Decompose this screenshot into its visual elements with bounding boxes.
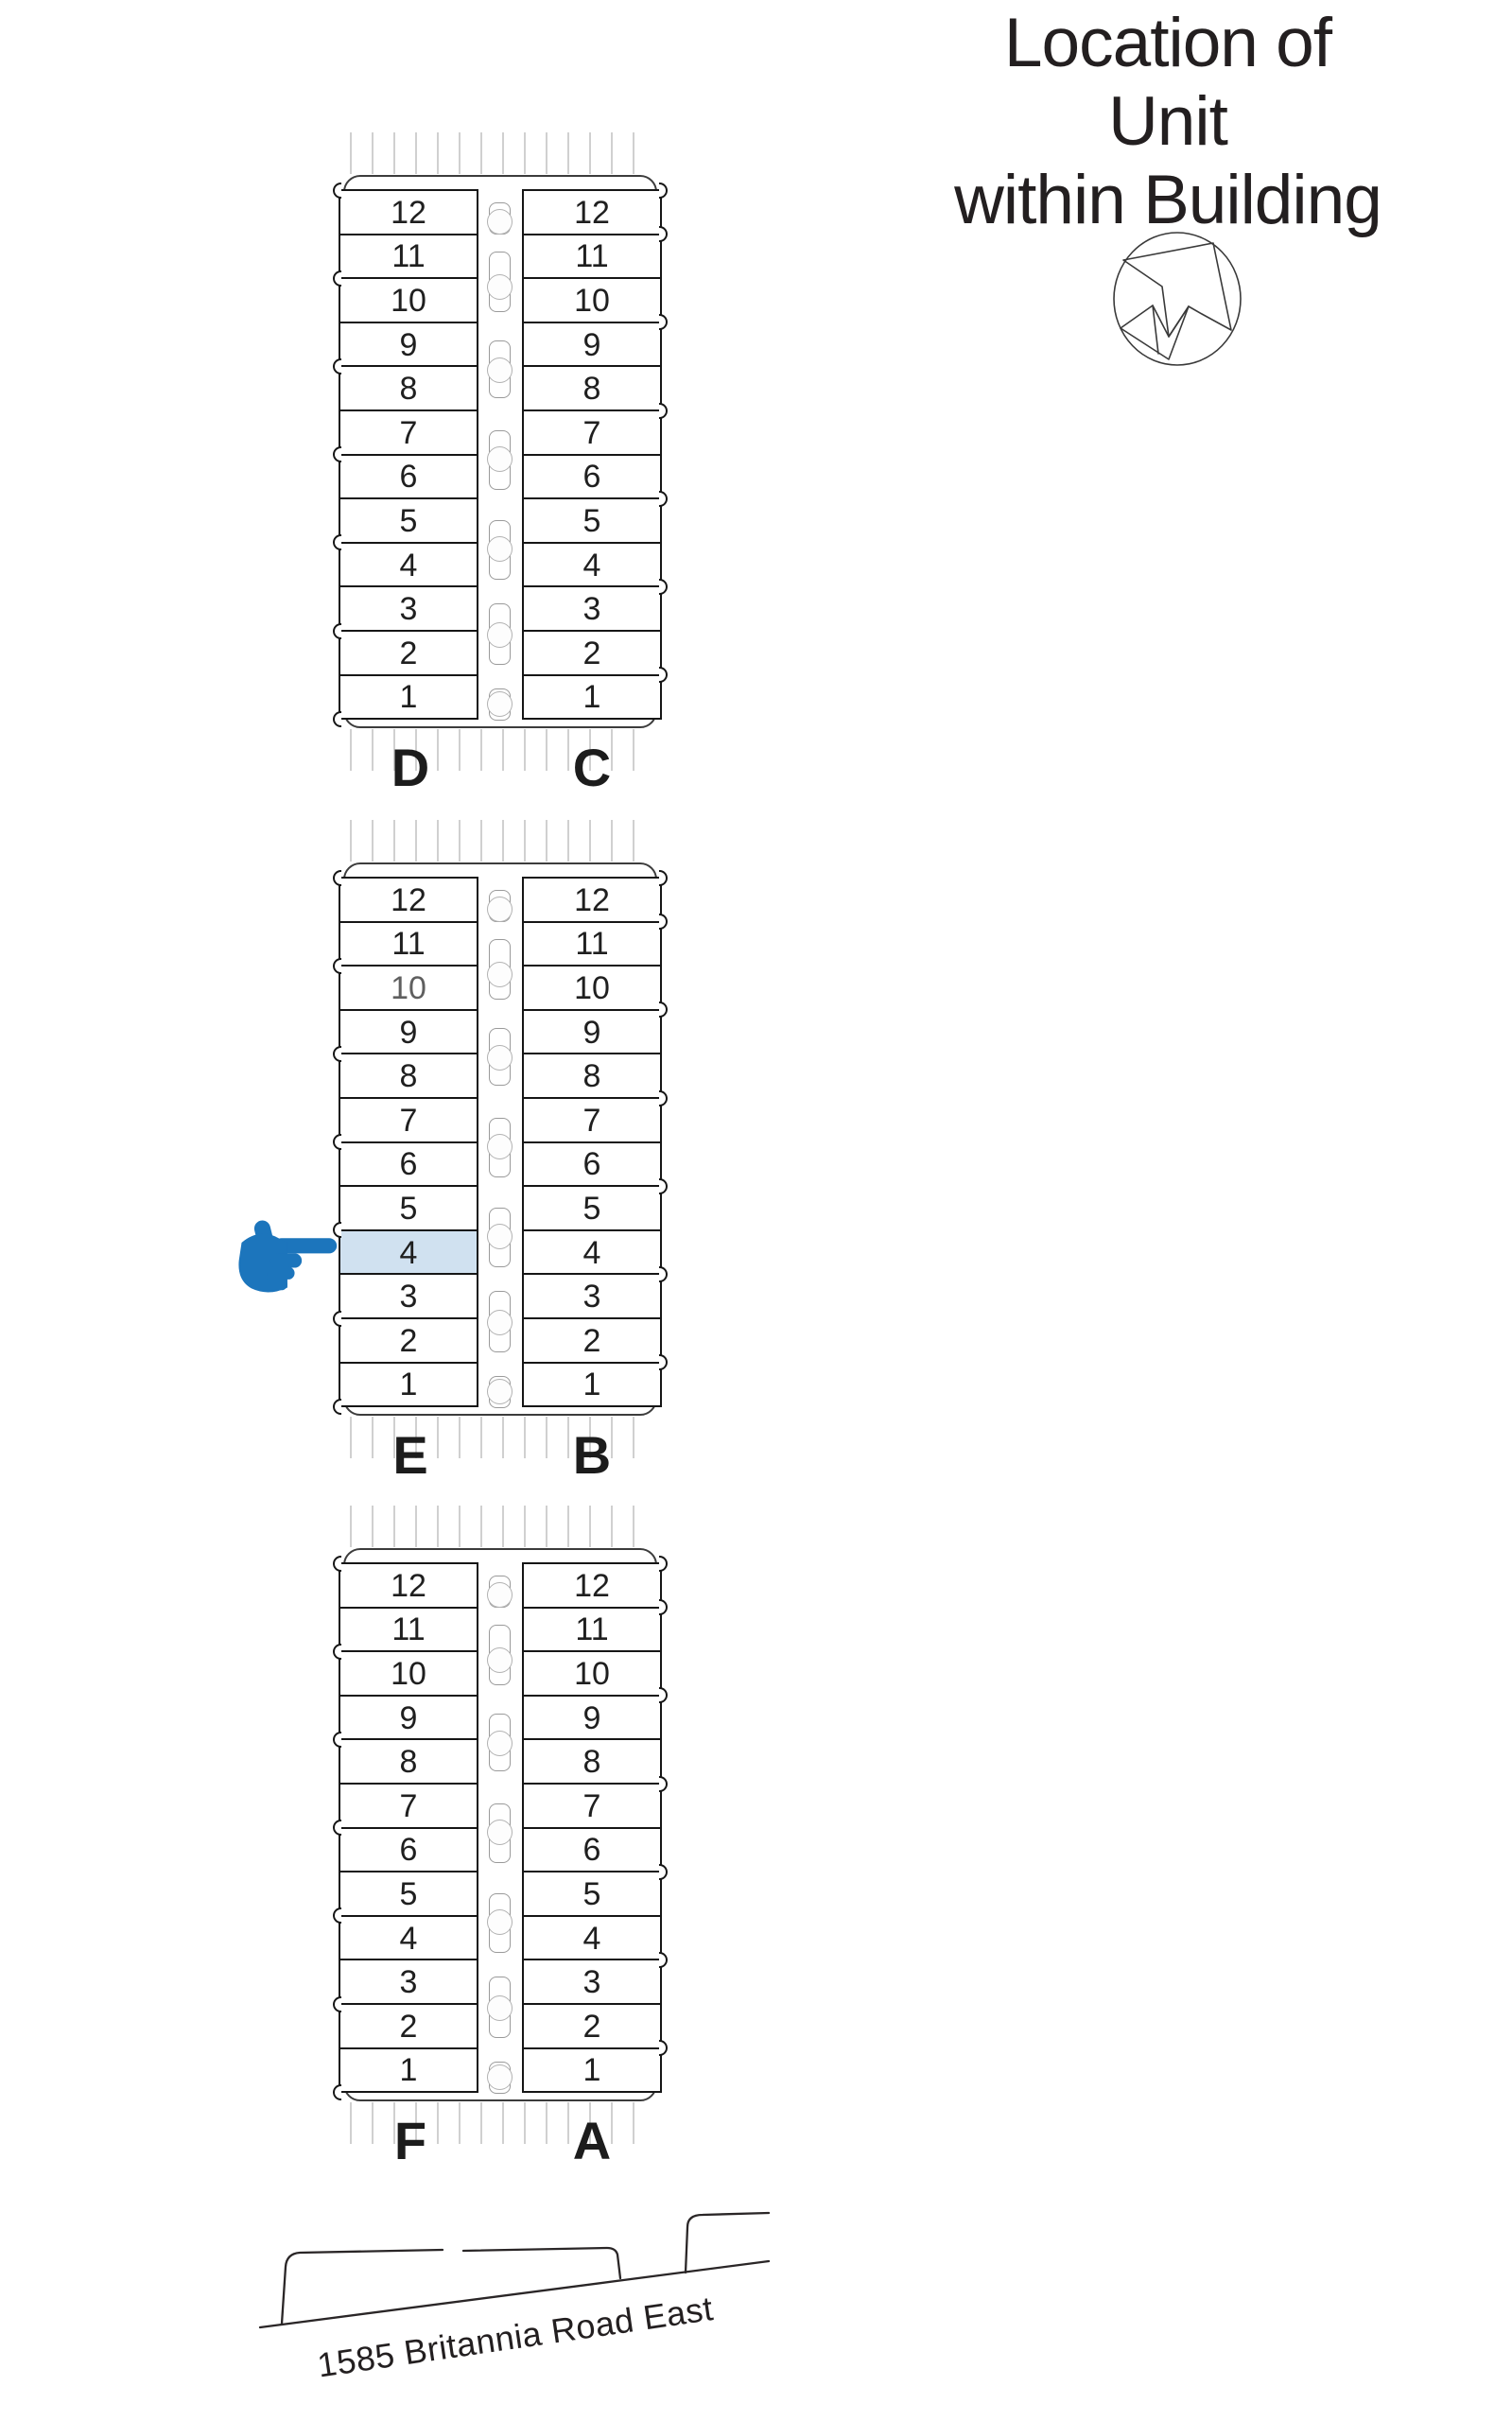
- unit-number: 8: [583, 1058, 601, 1095]
- unit-number: 12: [391, 882, 426, 919]
- unit-number: 12: [574, 882, 610, 919]
- unit-cell-A-4: 4: [522, 1915, 662, 1959]
- edge-notch: [659, 491, 668, 507]
- unit-cell-F-1: 1: [339, 2047, 478, 2092]
- edge-notch: [333, 2084, 341, 2100]
- unit-cell-F-10: 10: [339, 1650, 478, 1695]
- unit-cell-C-1: 1: [522, 674, 662, 719]
- unit-cell-F-4: 4: [339, 1915, 478, 1959]
- unit-cell-C-11: 11: [522, 234, 662, 278]
- edge-notch: [659, 403, 668, 419]
- unit-cell-E-5: 5: [339, 1185, 478, 1229]
- unit-cell-C-3: 3: [522, 585, 662, 630]
- unit-cell-B-9: 9: [522, 1009, 662, 1054]
- unit-number: 9: [400, 1700, 418, 1737]
- unit-number: 11: [391, 1611, 425, 1648]
- block-labels: D C: [339, 737, 662, 803]
- unit-cell-B-7: 7: [522, 1097, 662, 1141]
- edge-notch: [333, 1820, 341, 1836]
- unit-cell-B-5: 5: [522, 1185, 662, 1229]
- corridor: [478, 189, 522, 721]
- column-label-left: E: [392, 1424, 427, 1486]
- unit-number: 6: [400, 459, 418, 496]
- edge-notch: [333, 1907, 341, 1924]
- unit-cell-D-11: 11: [339, 234, 478, 278]
- edge-notch: [333, 358, 341, 374]
- unit-number: 7: [400, 415, 418, 452]
- unit-cell-D-1: 1: [339, 674, 478, 719]
- edge-notch: [333, 1996, 341, 2012]
- unit-cell-A-10: 10: [522, 1650, 662, 1695]
- edge-notch: [333, 1046, 341, 1062]
- unit-number: 6: [583, 459, 601, 496]
- column-label-right: B: [573, 1424, 611, 1486]
- unit-cell-A-1: 1: [522, 2047, 662, 2092]
- unit-cell-A-7: 7: [522, 1783, 662, 1827]
- unit-number: 4: [583, 548, 601, 584]
- unit-cell-F-5: 5: [339, 1871, 478, 1915]
- corridor-circle: [487, 2064, 513, 2090]
- balcony-ticks-top: [350, 132, 651, 174]
- unit-number: 11: [391, 926, 425, 963]
- edge-notch: [333, 183, 341, 199]
- corridor-circle: [487, 1909, 513, 1935]
- unit-cell-E-11: 11: [339, 921, 478, 966]
- unit-column-left: 121110987654321: [339, 1562, 478, 2093]
- unit-number: 6: [400, 1832, 418, 1869]
- corridor-circle: [487, 209, 513, 235]
- unit-cell-C-5: 5: [522, 497, 662, 542]
- unit-number: 8: [400, 1058, 418, 1095]
- unit-cell-F-12: 12: [339, 1562, 478, 1607]
- block-labels: E B: [339, 1424, 662, 1490]
- unit-number: 6: [400, 1146, 418, 1183]
- edge-notch: [333, 1134, 341, 1150]
- unit-number: 10: [391, 1656, 426, 1693]
- unit-column-left: 121110987654321: [339, 189, 478, 720]
- building-block-e-b: 121110987654321 121110987654321 E B: [339, 862, 662, 1416]
- edge-notch: [659, 314, 668, 330]
- edge-notch: [333, 711, 341, 727]
- balcony-ticks-top: [350, 820, 651, 862]
- unit-number: 12: [574, 1568, 610, 1605]
- unit-cell-B-8: 8: [522, 1053, 662, 1097]
- unit-number: 5: [400, 503, 418, 540]
- unit-number: 9: [583, 1700, 601, 1737]
- edge-notch: [659, 914, 668, 930]
- unit-cell-D-10: 10: [339, 277, 478, 322]
- unit-cell-F-7: 7: [339, 1783, 478, 1827]
- unit-number: 4: [400, 548, 418, 584]
- edge-notch: [333, 1556, 341, 1572]
- unit-cell-B-10: 10: [522, 965, 662, 1009]
- block-labels: F A: [339, 2110, 662, 2176]
- unit-number: 4: [400, 1921, 418, 1958]
- unit-location-diagram-page: Location of Unit within Building 1211109…: [0, 0, 1512, 2421]
- hand-pointer-icon: [233, 1218, 340, 1301]
- balcony-ticks-top: [350, 1506, 651, 1547]
- unit-number: 2: [583, 2009, 601, 2046]
- unit-number: 10: [574, 1656, 610, 1693]
- unit-cell-E-6: 6: [339, 1141, 478, 1186]
- unit-cell-F-11: 11: [339, 1607, 478, 1651]
- unit-number: 3: [400, 1964, 418, 2001]
- unit-number: 11: [575, 238, 608, 275]
- unit-number: 9: [400, 1015, 418, 1052]
- unit-number: 9: [583, 327, 601, 364]
- unit-number: 2: [400, 1323, 418, 1360]
- unit-cell-E-10: 10: [339, 965, 478, 1009]
- edge-notch: [333, 623, 341, 639]
- unit-number: 2: [400, 636, 418, 672]
- unit-number: 7: [400, 1103, 418, 1140]
- unit-number: 5: [400, 1876, 418, 1913]
- unit-number: 1: [583, 1367, 601, 1403]
- column-label-left: D: [391, 737, 429, 798]
- corridor-circle: [487, 1310, 513, 1335]
- unit-cell-D-2: 2: [339, 630, 478, 674]
- unit-number: 5: [583, 1191, 601, 1228]
- unit-number: 1: [400, 1367, 418, 1403]
- edge-notch: [659, 1687, 668, 1703]
- unit-number: 2: [583, 1323, 601, 1360]
- edge-notch: [659, 1001, 668, 1018]
- unit-number: 3: [400, 1279, 418, 1315]
- unit-cell-D-3: 3: [339, 585, 478, 630]
- unit-number: 1: [583, 2052, 601, 2089]
- unit-number: 3: [583, 1279, 601, 1315]
- edge-notch: [333, 270, 341, 287]
- unit-number: 10: [391, 970, 426, 1007]
- unit-cell-B-2: 2: [522, 1317, 662, 1362]
- unit-column-right: 121110987654321: [522, 1562, 662, 2093]
- unit-cell-D-4: 4: [339, 542, 478, 586]
- unit-number: 8: [400, 1744, 418, 1781]
- corridor-circle: [487, 1224, 513, 1249]
- corridor-circle: [487, 1995, 513, 2021]
- unit-cell-E-2: 2: [339, 1317, 478, 1362]
- unit-number: 9: [583, 1015, 601, 1052]
- unit-number: 1: [400, 679, 418, 716]
- unit-cell-B-6: 6: [522, 1141, 662, 1186]
- corridor-circle: [487, 274, 513, 300]
- corridor-circle: [487, 1582, 513, 1608]
- unit-number: 12: [391, 195, 426, 232]
- corridor: [478, 1562, 522, 2094]
- corridor-circle: [487, 691, 513, 717]
- unit-cell-B-12: 12: [522, 877, 662, 921]
- edge-notch: [659, 1266, 668, 1282]
- unit-number: 4: [583, 1235, 601, 1272]
- unit-number: 10: [391, 283, 426, 320]
- unit-number: 7: [583, 1103, 601, 1140]
- column-label-left: F: [394, 2110, 426, 2171]
- unit-cell-F-9: 9: [339, 1695, 478, 1739]
- edge-notch: [659, 1599, 668, 1615]
- unit-cell-D-8: 8: [339, 365, 478, 409]
- north-arrow-compass-icon: [1110, 229, 1248, 369]
- corridor: [478, 877, 522, 1408]
- unit-column-right: 121110987654321: [522, 189, 662, 720]
- edge-notch: [333, 534, 341, 550]
- unit-number: 8: [583, 1744, 601, 1781]
- edge-notch: [659, 1178, 668, 1194]
- corridor-circle: [487, 1379, 513, 1404]
- unit-cell-A-12: 12: [522, 1562, 662, 1607]
- unit-cell-E-12: 12: [339, 877, 478, 921]
- unit-number: 6: [583, 1832, 601, 1869]
- unit-cell-E-7: 7: [339, 1097, 478, 1141]
- unit-column-left: 121110987654321: [339, 877, 478, 1407]
- corridor-circle: [487, 1134, 513, 1159]
- edge-notch: [659, 1556, 668, 1572]
- corridor-circle: [487, 1731, 513, 1756]
- unit-number: 5: [583, 1876, 601, 1913]
- unit-number: 4: [583, 1921, 601, 1958]
- edge-notch: [333, 958, 341, 974]
- unit-number: 7: [583, 1788, 601, 1825]
- unit-number: 7: [400, 1788, 418, 1825]
- corridor-circle: [487, 897, 513, 922]
- unit-cell-F-8: 8: [339, 1738, 478, 1783]
- corridor-circle: [487, 1045, 513, 1071]
- unit-number: 5: [583, 503, 601, 540]
- edge-notch: [333, 446, 341, 462]
- unit-cell-C-8: 8: [522, 365, 662, 409]
- unit-cell-C-6: 6: [522, 454, 662, 498]
- edge-notch: [659, 870, 668, 886]
- unit-number: 11: [575, 926, 608, 963]
- unit-cell-D-5: 5: [339, 497, 478, 542]
- unit-number: 10: [574, 283, 610, 320]
- corridor-circle: [487, 1647, 513, 1673]
- unit-number: 5: [400, 1191, 418, 1228]
- column-label-right: A: [573, 2110, 611, 2171]
- page-title-line1: Location of Unit: [946, 4, 1390, 161]
- building-block-d-c: 121110987654321 121110987654321 D C: [339, 175, 662, 728]
- unit-cell-E-3: 3: [339, 1273, 478, 1317]
- edge-notch: [333, 1644, 341, 1660]
- unit-cell-F-2: 2: [339, 2003, 478, 2047]
- corridor-circle: [487, 446, 513, 472]
- edge-notch: [659, 183, 668, 199]
- unit-cell-B-3: 3: [522, 1273, 662, 1317]
- edge-notch: [333, 1311, 341, 1327]
- unit-number: 12: [574, 195, 610, 232]
- unit-cell-F-6: 6: [339, 1827, 478, 1872]
- unit-number: 1: [400, 2052, 418, 2089]
- edge-notch: [333, 870, 341, 886]
- unit-number: 3: [583, 1964, 601, 2001]
- edge-notch: [659, 667, 668, 683]
- unit-cell-C-9: 9: [522, 322, 662, 366]
- unit-cell-E-9: 9: [339, 1009, 478, 1054]
- unit-number: 10: [574, 970, 610, 1007]
- edge-notch: [659, 579, 668, 595]
- unit-cell-D-7: 7: [339, 409, 478, 454]
- unit-number: 2: [400, 2009, 418, 2046]
- unit-cell-A-2: 2: [522, 2003, 662, 2047]
- edge-notch: [659, 1090, 668, 1106]
- unit-number: 1: [583, 679, 601, 716]
- page-title: Location of Unit within Building: [946, 4, 1390, 240]
- unit-cell-E-4: 4: [339, 1229, 478, 1274]
- unit-cell-B-4: 4: [522, 1229, 662, 1274]
- corridor-circle: [487, 622, 513, 648]
- edge-notch: [659, 1952, 668, 1968]
- unit-number: 3: [583, 591, 601, 628]
- column-label-right: C: [573, 737, 611, 798]
- unit-cell-D-6: 6: [339, 454, 478, 498]
- unit-cell-D-12: 12: [339, 189, 478, 234]
- unit-number: 9: [400, 327, 418, 364]
- edge-notch: [333, 1399, 341, 1415]
- unit-number: 11: [391, 238, 425, 275]
- unit-number: 3: [400, 591, 418, 628]
- unit-number: 8: [583, 371, 601, 408]
- unit-cell-C-12: 12: [522, 189, 662, 234]
- unit-cell-B-11: 11: [522, 921, 662, 966]
- unit-cell-C-10: 10: [522, 277, 662, 322]
- unit-cell-E-8: 8: [339, 1053, 478, 1097]
- edge-notch: [659, 1864, 668, 1880]
- unit-cell-E-1: 1: [339, 1362, 478, 1406]
- unit-number: 8: [400, 371, 418, 408]
- edge-notch: [659, 1776, 668, 1792]
- unit-number: 6: [583, 1146, 601, 1183]
- edge-notch: [659, 1354, 668, 1370]
- unit-number: 2: [583, 636, 601, 672]
- unit-cell-A-9: 9: [522, 1695, 662, 1739]
- edge-notch: [333, 1732, 341, 1748]
- edge-notch: [659, 226, 668, 242]
- unit-cell-C-7: 7: [522, 409, 662, 454]
- unit-cell-A-11: 11: [522, 1607, 662, 1651]
- corridor-circle: [487, 962, 513, 987]
- corridor-circle: [487, 1820, 513, 1845]
- unit-cell-A-6: 6: [522, 1827, 662, 1872]
- unit-cell-C-4: 4: [522, 542, 662, 586]
- unit-cell-C-2: 2: [522, 630, 662, 674]
- unit-number: 12: [391, 1568, 426, 1605]
- unit-cell-A-8: 8: [522, 1738, 662, 1783]
- unit-number: 7: [583, 415, 601, 452]
- unit-cell-D-9: 9: [339, 322, 478, 366]
- unit-cell-A-3: 3: [522, 1959, 662, 2003]
- edge-notch: [659, 2040, 668, 2056]
- corridor-circle: [487, 536, 513, 562]
- corridor-circle: [487, 357, 513, 383]
- unit-number: 11: [575, 1611, 608, 1648]
- building-block-f-a: 121110987654321 121110987654321 F A: [339, 1548, 662, 2101]
- unit-cell-F-3: 3: [339, 1959, 478, 2003]
- unit-cell-B-1: 1: [522, 1362, 662, 1406]
- unit-column-right: 121110987654321: [522, 877, 662, 1407]
- unit-number: 4: [400, 1235, 418, 1272]
- unit-cell-A-5: 5: [522, 1871, 662, 1915]
